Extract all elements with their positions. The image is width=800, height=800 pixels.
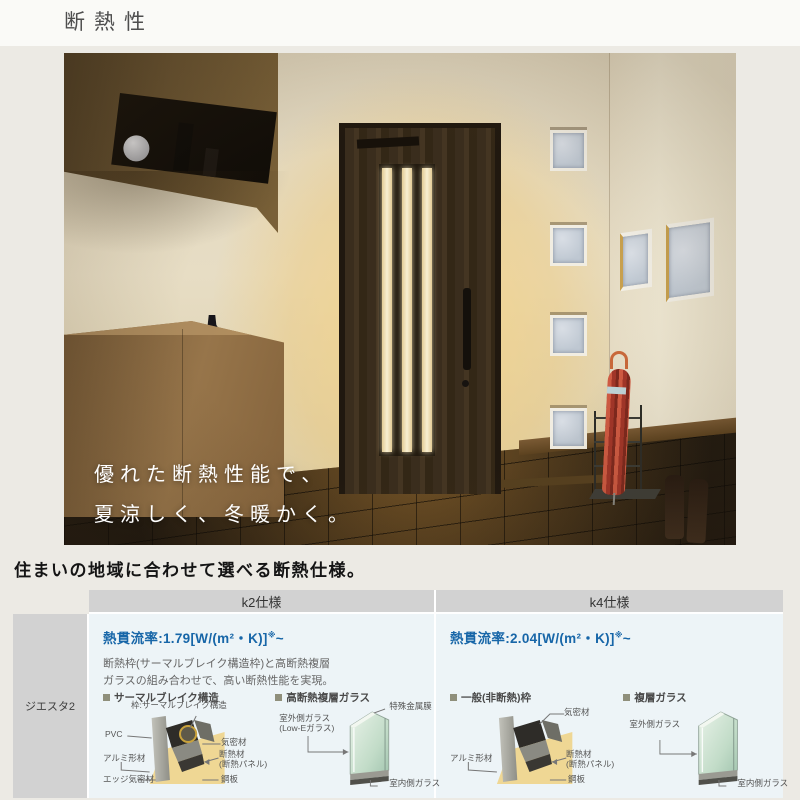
glass-diagram-k4: 複層ガラス xyxy=(623,690,771,790)
column-header-k2: k2仕様 xyxy=(89,590,436,614)
square-bullet-icon xyxy=(275,694,282,701)
u-value-k2: 熱貫流率:1.79[W/(m²・K)]※~ xyxy=(103,627,422,647)
frame-figure-k2: 枠:サーマルブレイク構造 PVC 気密材 アルミ形材 断熱材 (断熱パネル) エ… xyxy=(103,706,275,790)
cell-k2: 熱貫流率:1.79[W/(m²・K)]※~ 断熱枠(サーマルブレイク構造枠)と高… xyxy=(89,614,436,798)
frame-figure-k4: 気密材 アルミ形材 断熱材 (断熱パネル) 鋼板 xyxy=(450,706,623,790)
frame-cross-section xyxy=(450,706,623,786)
u-value-k4: 熱貫流率:2.04[W/(m²・K)]※~ xyxy=(450,627,771,647)
frame-diagram-k4: 一般(非断熱)枠 xyxy=(450,690,623,790)
square-bullet-icon xyxy=(450,694,457,701)
glass-figure-k2: 特殊金属膜 室外側ガラス (Low-Eガラス) 室内側ガラス xyxy=(275,706,422,790)
hero-caption: 優れた断熱性能で、 夏涼しく、冬暖かく。 xyxy=(94,455,354,535)
square-bullet-icon xyxy=(623,694,630,701)
description-k2: 断熱枠(サーマルブレイク構造枠)と高断熱複層 ガラスの組み合わせで、高い断熱性能… xyxy=(103,656,422,690)
spec-table: k2仕様 k4仕様 ジエスタ2 熱貫流率:1.79[W/(m²・K)]※~ 断熱… xyxy=(13,590,783,791)
frame-diagram-k2: サーマルブレイク構造 xyxy=(103,690,275,790)
row-label-giesta2: ジエスタ2 xyxy=(13,614,89,798)
glass-figure-k4: 室外側ガラス 室内側ガラス xyxy=(623,706,771,790)
page: 断熱性 xyxy=(0,0,800,800)
glass-diagram-k2: 高断熱複層ガラス xyxy=(275,690,422,790)
column-header-k4: k4仕様 xyxy=(436,590,783,614)
square-bullet-icon xyxy=(103,694,110,701)
cell-k4: 熱貫流率:2.04[W/(m²・K)]※~ 一般(非断熱)枠 xyxy=(436,614,783,798)
title-band: 断熱性 xyxy=(0,0,800,46)
hero-photo: 優れた断熱性能で、 夏涼しく、冬暖かく。 xyxy=(64,53,736,545)
page-title: 断熱性 xyxy=(64,0,154,46)
section-heading: 住まいの地域に合わせて選べる断熱仕様。 xyxy=(14,556,366,581)
